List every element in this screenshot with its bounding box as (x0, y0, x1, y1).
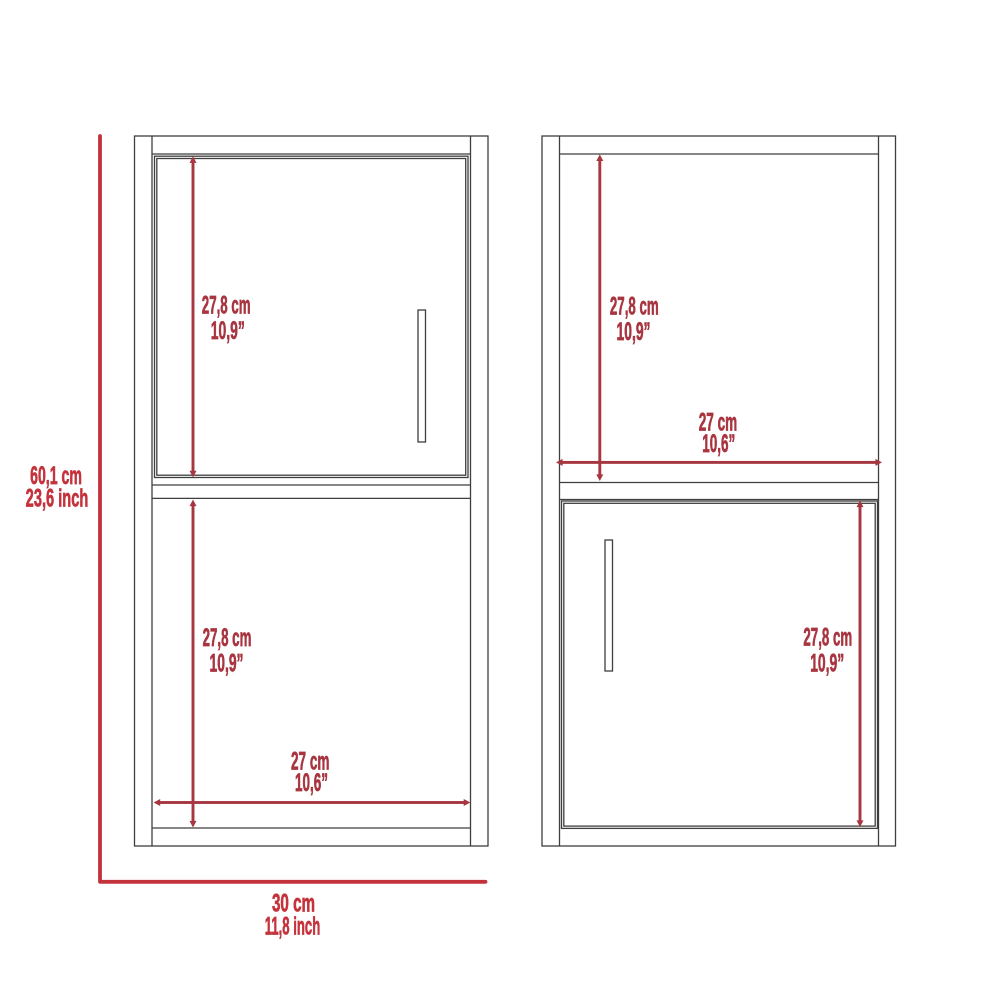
svg-text:10,9”: 10,9” (211, 318, 245, 345)
svg-text:27,8 cm: 27,8 cm (610, 293, 659, 320)
svg-text:10,6”: 10,6” (702, 431, 735, 458)
svg-text:23,6 inch: 23,6 inch (26, 484, 89, 512)
svg-text:10,9”: 10,9” (810, 650, 844, 677)
svg-text:11,8 inch: 11,8 inch (265, 913, 320, 941)
svg-text:10,9”: 10,9” (210, 650, 244, 677)
svg-text:27,8 cm: 27,8 cm (803, 624, 852, 651)
svg-text:27,8 cm: 27,8 cm (203, 625, 252, 652)
svg-text:27,8 cm: 27,8 cm (202, 292, 251, 319)
svg-text:10,9”: 10,9” (617, 319, 651, 346)
svg-text:10,6”: 10,6” (295, 770, 328, 797)
